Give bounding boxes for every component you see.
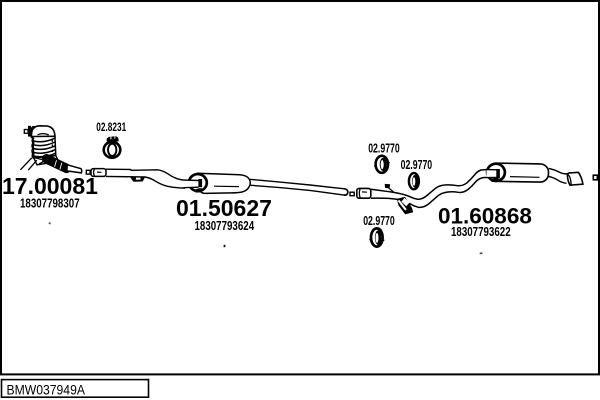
svg-text:02.9770: 02.9770 xyxy=(363,215,395,229)
svg-text:02.9770: 02.9770 xyxy=(401,159,433,173)
svg-text:18307793622: 18307793622 xyxy=(451,226,511,240)
svg-text:18307793624: 18307793624 xyxy=(195,220,255,234)
svg-text:17.00081: 17.00081 xyxy=(2,173,98,199)
svg-text:02.9770: 02.9770 xyxy=(368,142,400,156)
svg-text:02.8231: 02.8231 xyxy=(96,122,126,135)
svg-text:01.50627: 01.50627 xyxy=(176,195,272,221)
svg-text:BMW037949A: BMW037949A xyxy=(7,382,86,398)
svg-text:18307798307: 18307798307 xyxy=(20,197,80,211)
